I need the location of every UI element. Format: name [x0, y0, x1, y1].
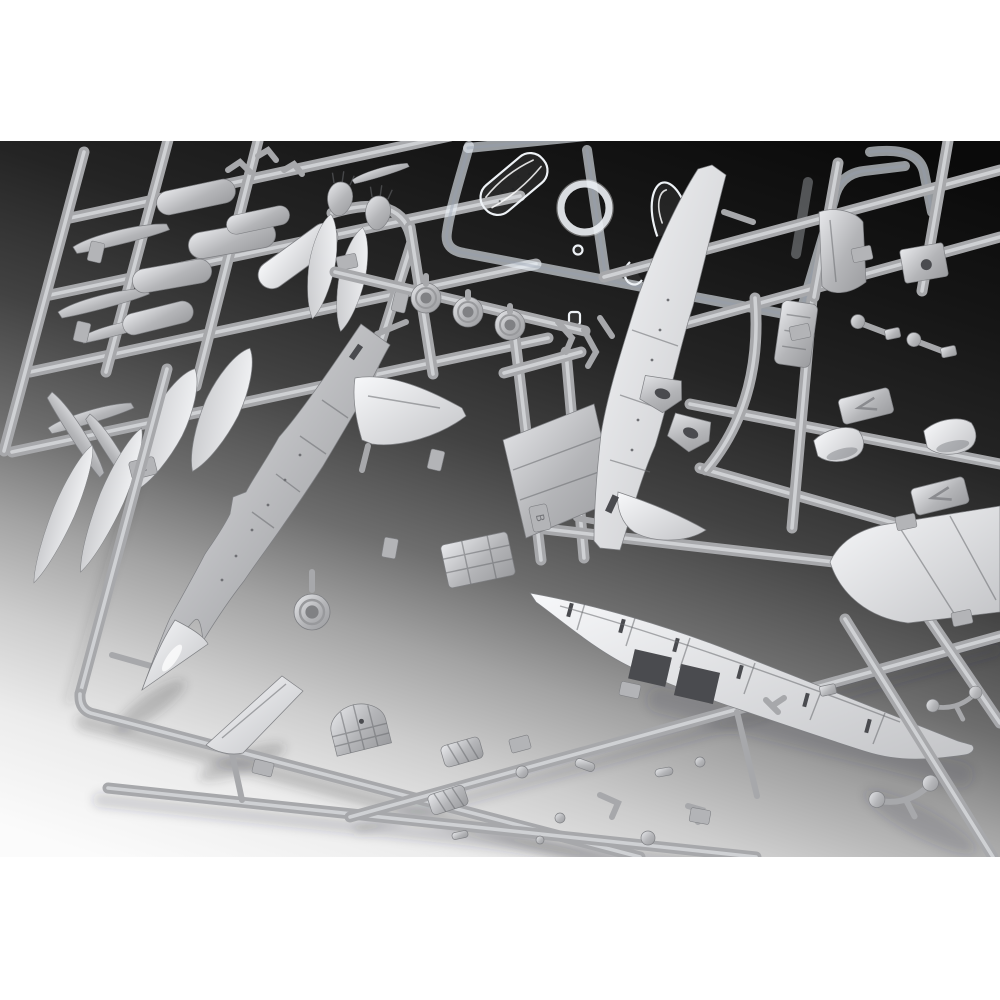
wheel	[453, 297, 483, 327]
bulkhead-plate	[899, 242, 948, 283]
clear-lens	[574, 246, 583, 255]
wheel	[411, 283, 441, 313]
main-wheel	[294, 594, 330, 630]
kit-photo: C	[0, 0, 1000, 1000]
